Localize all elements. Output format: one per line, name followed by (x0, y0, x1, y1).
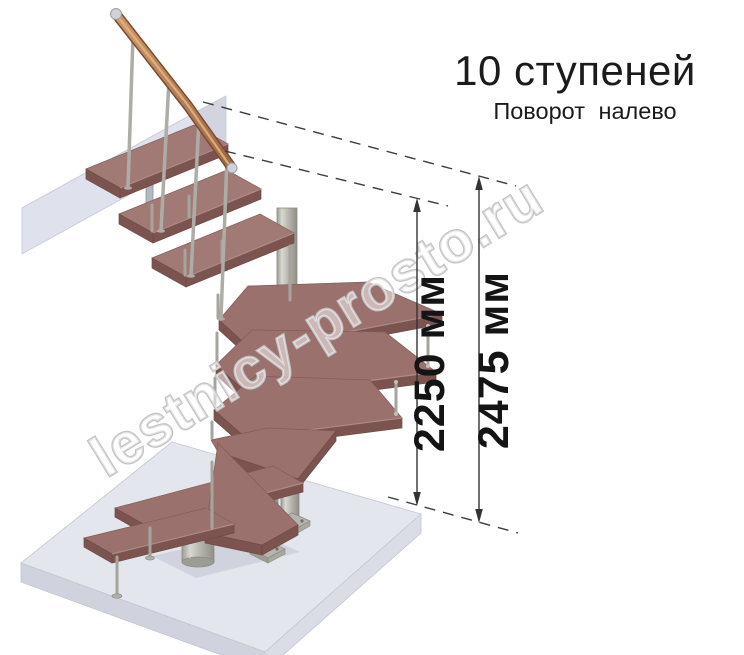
dimension-label-2250: 2250 мм (406, 274, 454, 452)
handrail-end-cap-top (111, 9, 122, 20)
handrail-end-cap-bottom (227, 163, 237, 173)
extension-line-upper-floor (203, 102, 516, 186)
staircase-diagram: lestnicy-prosto.ru 2250 мм 2475 мм 10 ст… (0, 0, 744, 655)
page-title: 10 ступеней (454, 47, 696, 94)
page-subtitle: Поворот налево (493, 98, 676, 124)
staircase-diagram-page: lestnicy-prosto.ru 2250 мм 2475 мм 10 ст… (0, 0, 744, 655)
dimension-label-2475: 2475 мм (470, 271, 518, 449)
